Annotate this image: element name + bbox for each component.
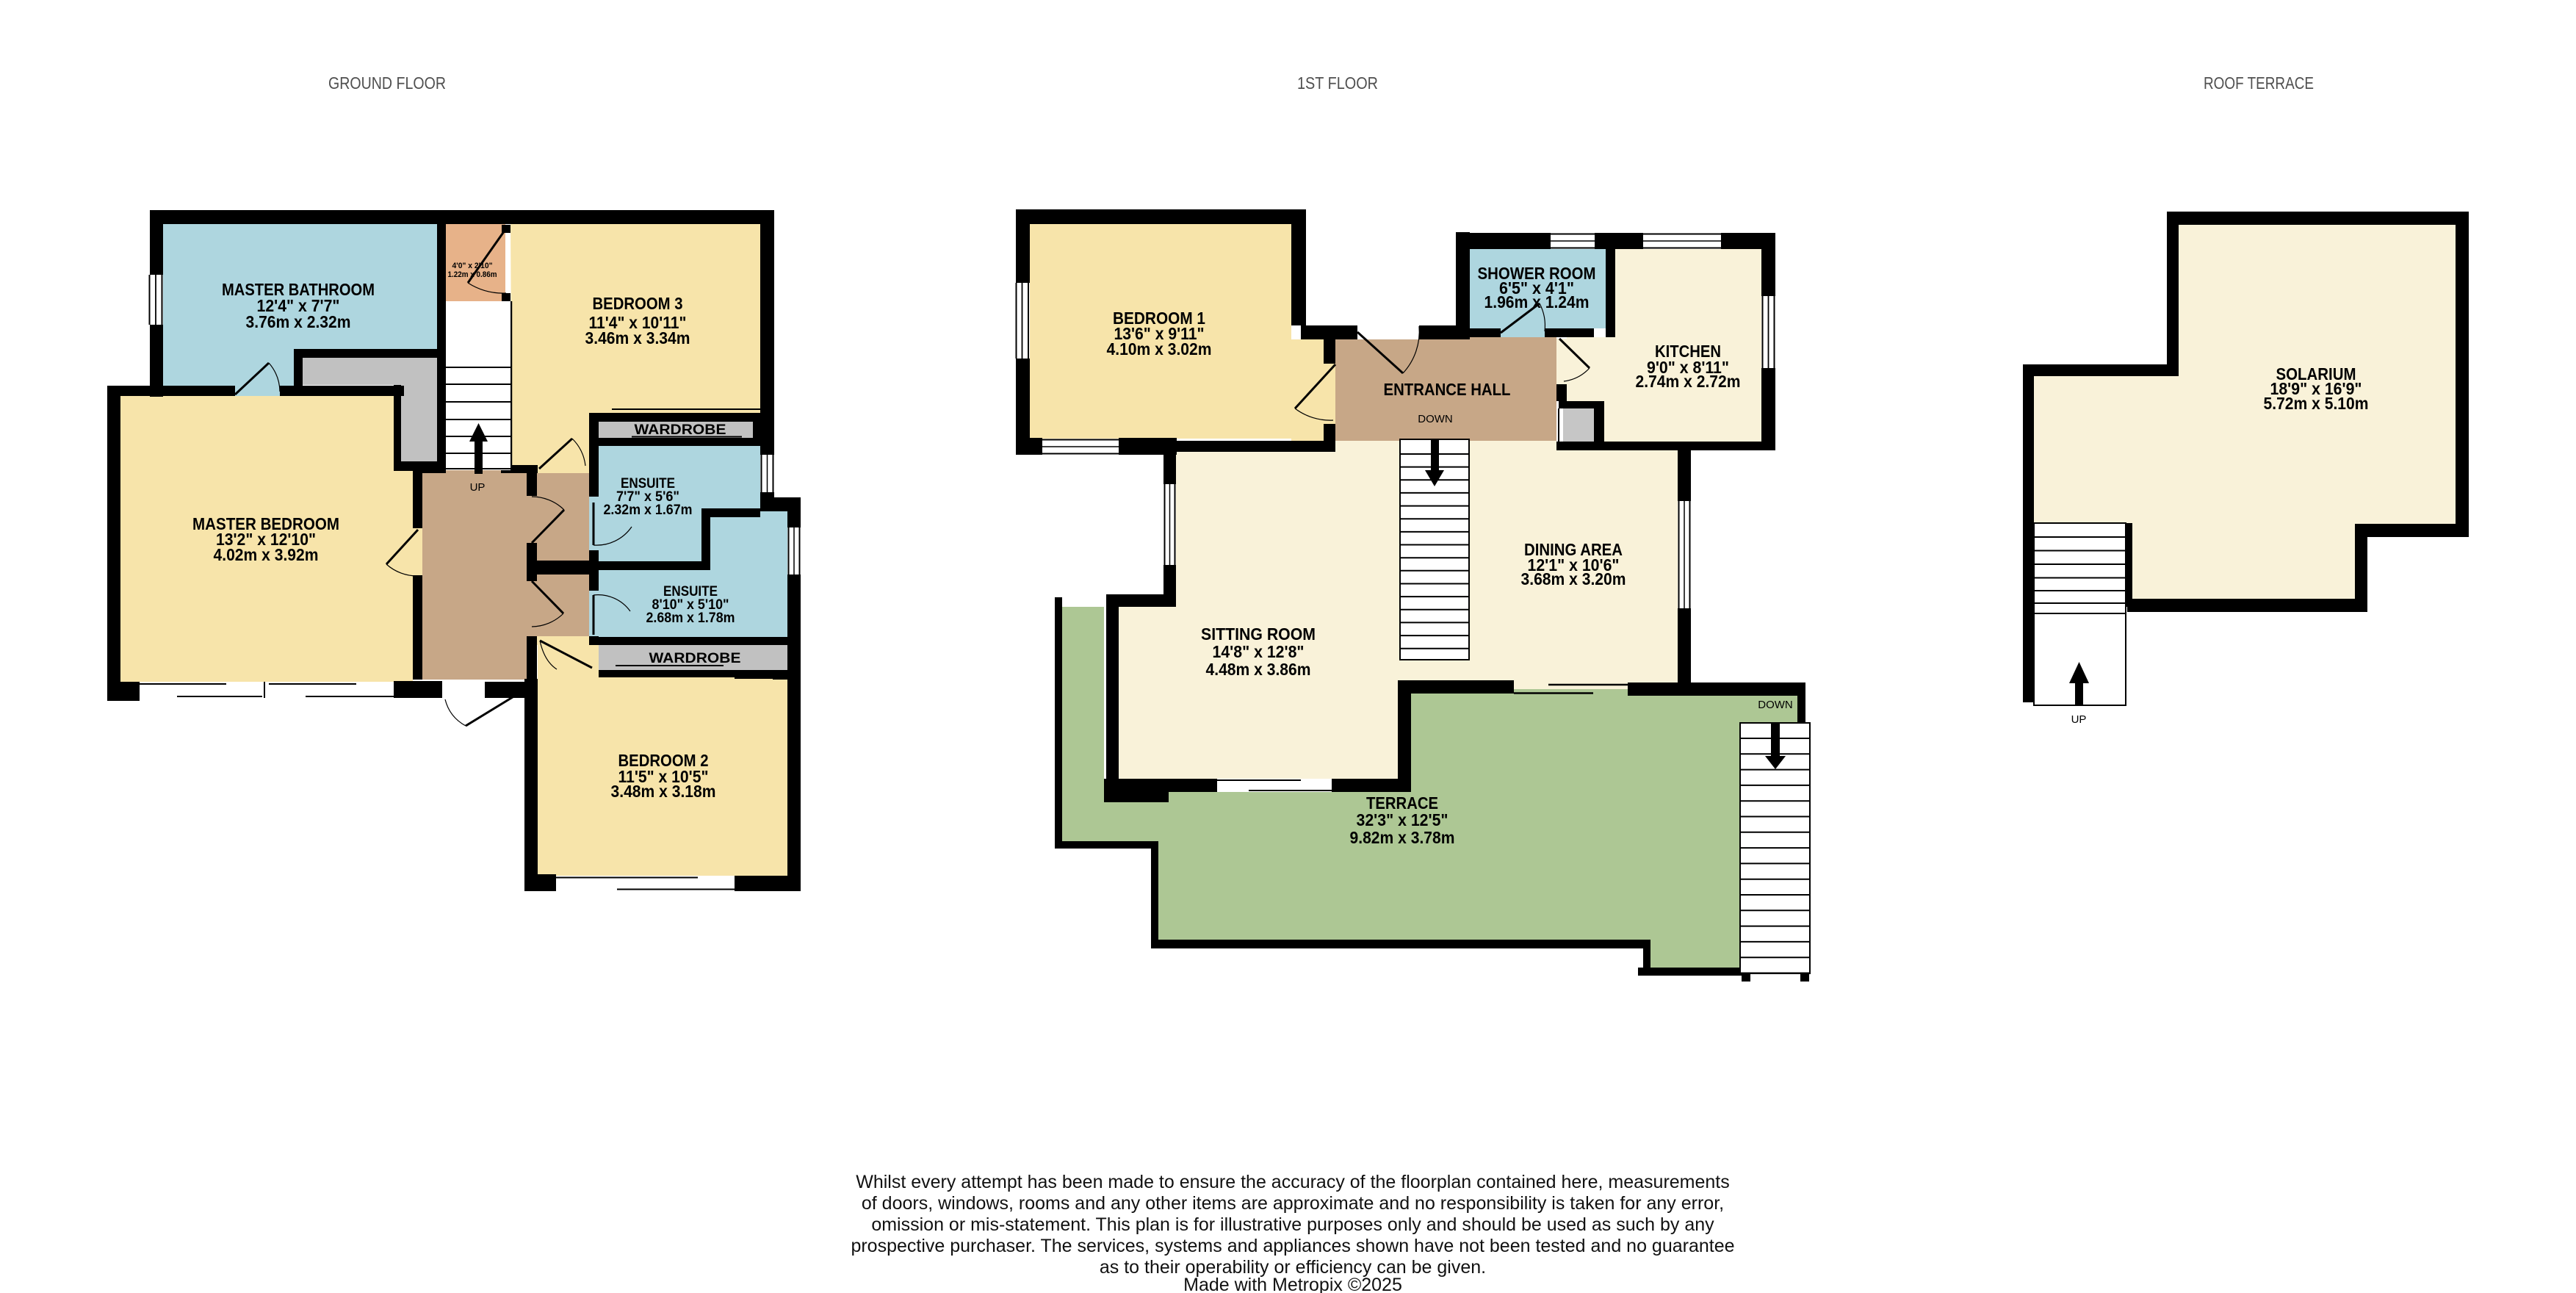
svg-text:GROUND FLOOR: GROUND FLOOR — [328, 73, 446, 93]
svg-text:DOWN: DOWN — [1758, 699, 1793, 711]
svg-text:ENTRANCE HALL: ENTRANCE HALL — [1384, 380, 1511, 399]
svg-text:WARDROBE: WARDROBE — [649, 651, 741, 666]
svg-text:prospective purchaser. The ser: prospective purchaser. The services, sys… — [851, 1236, 1734, 1256]
svg-text:1ST FLOOR: 1ST FLOOR — [1297, 73, 1378, 93]
svg-text:WARDROBE: WARDROBE — [635, 422, 726, 438]
svg-text:14'8" x 12'8": 14'8" x 12'8" — [1213, 642, 1305, 661]
svg-text:UP: UP — [470, 481, 486, 494]
svg-text:2.74m x 2.72m: 2.74m x 2.72m — [1636, 372, 1741, 391]
svg-text:1.22m x 0.86m: 1.22m x 0.86m — [448, 270, 497, 279]
svg-text:of doors, windows, rooms and a: of doors, windows, rooms and any other i… — [862, 1193, 1724, 1214]
svg-text:3.68m x 3.20m: 3.68m x 3.20m — [1521, 569, 1626, 588]
svg-text:5.72m x 5.10m: 5.72m x 5.10m — [2264, 394, 2369, 413]
svg-text:Made with Metropix ©2025: Made with Metropix ©2025 — [1183, 1275, 1402, 1293]
svg-text:32'3" x 12'5": 32'3" x 12'5" — [1357, 810, 1448, 829]
svg-text:9.82m x 3.78m: 9.82m x 3.78m — [1350, 828, 1455, 847]
svg-text:Whilst every attempt has been: Whilst every attempt has been made to en… — [856, 1172, 1730, 1192]
svg-text:UP: UP — [2071, 713, 2087, 726]
svg-text:4.10m x 3.02m: 4.10m x 3.02m — [1107, 339, 1212, 359]
svg-text:DOWN: DOWN — [1418, 413, 1453, 425]
svg-text:1.96m x 1.24m: 1.96m x 1.24m — [1484, 292, 1590, 311]
svg-text:SITTING ROOM: SITTING ROOM — [1201, 624, 1316, 644]
svg-text:4.48m x 3.86m: 4.48m x 3.86m — [1206, 660, 1311, 679]
svg-text:3.76m x 2.32m: 3.76m x 2.32m — [246, 312, 351, 331]
svg-text:2.32m x 1.67m: 2.32m x 1.67m — [604, 503, 693, 518]
svg-text:3.48m x 3.18m: 3.48m x 3.18m — [611, 782, 716, 801]
svg-text:4'0" x 2'10": 4'0" x 2'10" — [452, 262, 493, 270]
svg-text:2.68m x 1.78m: 2.68m x 1.78m — [646, 611, 735, 626]
svg-text:BEDROOM 3: BEDROOM 3 — [593, 294, 683, 313]
svg-text:4.02m x 3.92m: 4.02m x 3.92m — [214, 545, 319, 564]
svg-text:omission or mis-statement. Thi: omission or mis-statement. This plan is … — [871, 1214, 1714, 1235]
svg-text:3.46m x 3.34m: 3.46m x 3.34m — [585, 328, 690, 347]
svg-text:ROOF TERRACE: ROOF TERRACE — [2204, 73, 2314, 93]
